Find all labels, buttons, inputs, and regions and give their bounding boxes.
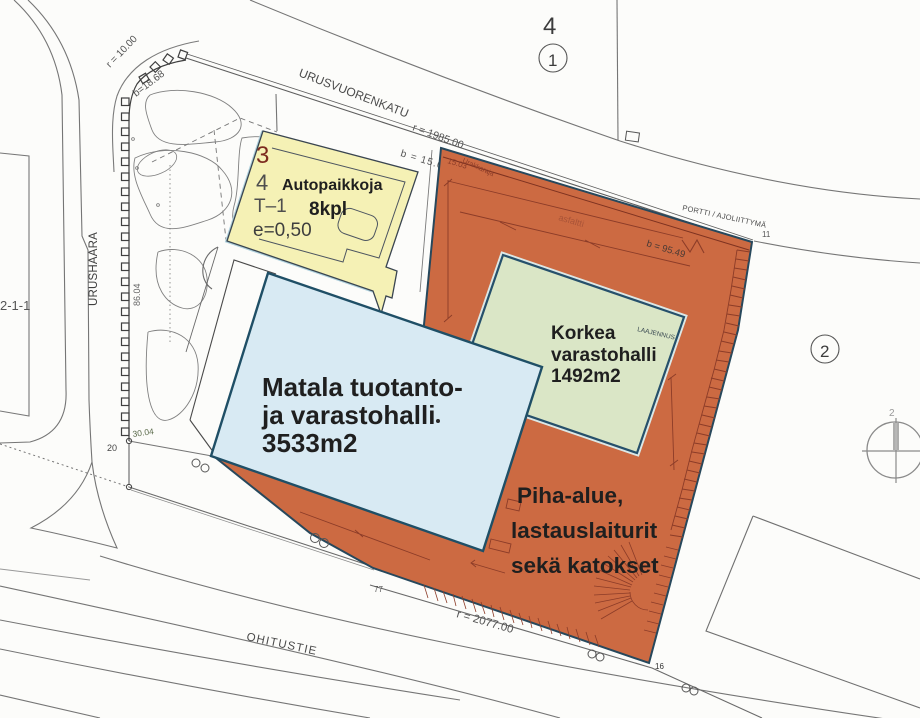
- svg-text:2: 2: [820, 342, 829, 361]
- svg-text:1492m2: 1492m2: [551, 366, 621, 387]
- svg-text:e=0,50: e=0,50: [253, 220, 312, 241]
- svg-text:Piha-alue,: Piha-alue,: [517, 483, 623, 508]
- svg-text:86.04: 86.04: [132, 283, 142, 306]
- svg-text:20: 20: [107, 443, 117, 453]
- svg-text:URUSHAARA: URUSHAARA: [88, 232, 100, 306]
- svg-text:11: 11: [762, 230, 771, 239]
- svg-text:1: 1: [548, 51, 557, 70]
- svg-text:sekä katokset: sekä katokset: [511, 553, 659, 578]
- svg-text:T–1: T–1: [254, 196, 287, 217]
- svg-text:3533m2: 3533m2: [262, 428, 357, 458]
- svg-text:77: 77: [374, 585, 383, 594]
- svg-text:16: 16: [655, 662, 664, 671]
- svg-text:4: 4: [543, 13, 556, 40]
- svg-text:ja varastohalli: ja varastohalli: [261, 400, 435, 430]
- svg-text:Matala tuotanto-: Matala tuotanto-: [262, 372, 463, 402]
- svg-text:Autopaikkoja: Autopaikkoja: [282, 177, 383, 194]
- svg-text:varastohalli: varastohalli: [551, 345, 657, 366]
- svg-text:3: 3: [256, 142, 269, 169]
- svg-text:8kpl: 8kpl: [309, 199, 347, 220]
- svg-text:lastauslaiturit: lastauslaiturit: [511, 518, 658, 543]
- svg-text:2-1-1: 2-1-1: [0, 298, 30, 313]
- svg-text:Korkea: Korkea: [551, 323, 616, 344]
- svg-text:2: 2: [889, 408, 895, 419]
- svg-text:4: 4: [256, 170, 268, 195]
